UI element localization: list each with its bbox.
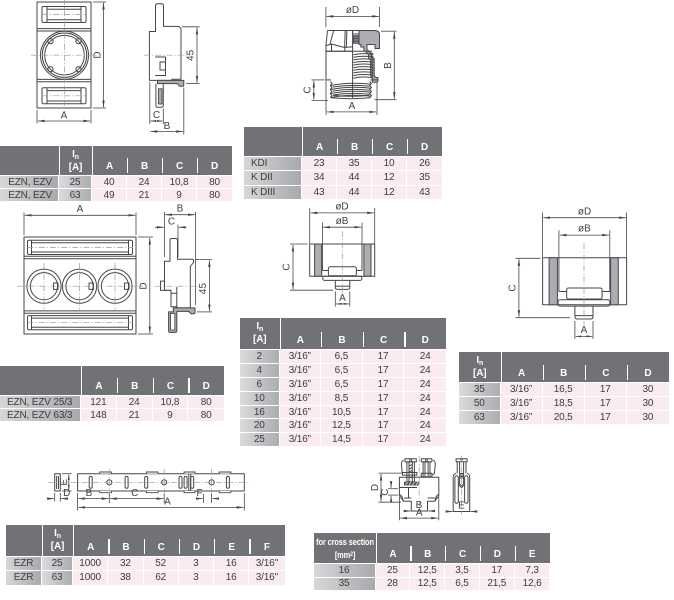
svg-text:C: C [282,263,293,270]
svg-text:øB: øB [578,224,591,235]
svg-text:D: D [139,282,150,289]
svg-text:D: D [93,51,104,58]
svg-text:B: B [177,204,184,215]
svg-text:F: F [196,488,202,499]
svg-text:A: A [77,204,84,215]
svg-text:C: C [153,110,160,121]
svg-text:A: A [581,325,588,336]
svg-text:45: 45 [186,49,197,61]
svg-text:B: B [164,121,171,132]
svg-text:A: A [61,110,68,121]
svg-text:øB: øB [336,216,349,227]
svg-text:45: 45 [198,283,209,295]
svg-text:A: A [164,497,171,508]
svg-text:E: E [458,500,465,511]
svg-text:øD: øD [578,206,591,217]
svg-text:C: C [302,86,313,93]
svg-text:A: A [348,101,355,112]
svg-text:øD: øD [335,202,348,213]
svg-text:A: A [339,293,346,304]
svg-text:C: C [380,489,391,496]
svg-text:C: C [168,217,175,228]
svg-text:C: C [131,488,138,499]
svg-text:C: C [508,284,519,291]
svg-text:B: B [86,488,93,499]
svg-text:A: A [416,507,423,518]
svg-text:øD: øD [346,5,359,16]
svg-text:D: D [63,488,70,499]
svg-text:B: B [383,62,394,69]
